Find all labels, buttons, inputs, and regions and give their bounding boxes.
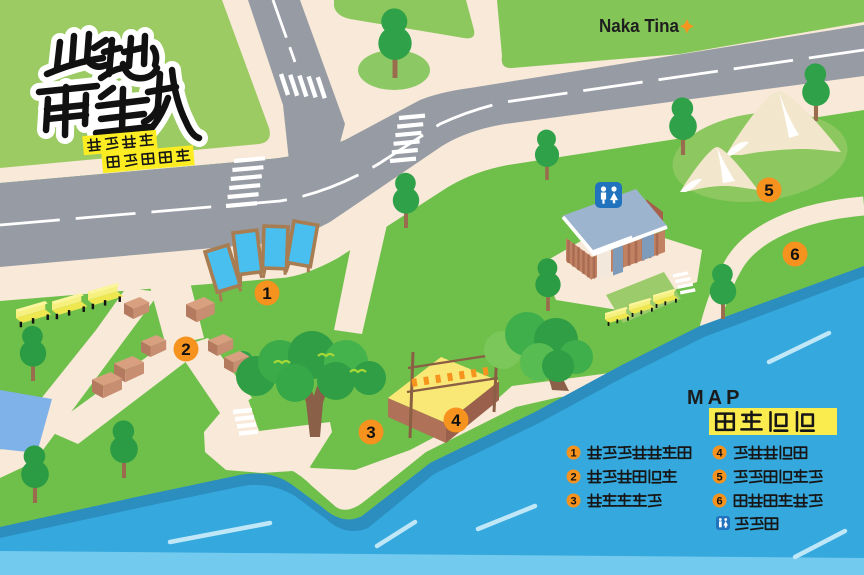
svg-text:4: 4 — [716, 447, 723, 459]
svg-text:3: 3 — [570, 495, 576, 507]
svg-text:3: 3 — [366, 423, 375, 442]
svg-text:MAP: MAP — [687, 387, 743, 409]
svg-text:1: 1 — [262, 284, 271, 303]
svg-text:Naka Tina: Naka Tina — [599, 16, 680, 36]
svg-text:1: 1 — [570, 447, 576, 459]
svg-text:6: 6 — [716, 495, 722, 507]
svg-text:5: 5 — [716, 471, 722, 483]
svg-text:2: 2 — [181, 340, 190, 359]
svg-text:5: 5 — [764, 181, 773, 200]
svg-text:2: 2 — [570, 471, 576, 483]
svg-text:4: 4 — [451, 411, 461, 430]
svg-text:6: 6 — [790, 245, 799, 264]
